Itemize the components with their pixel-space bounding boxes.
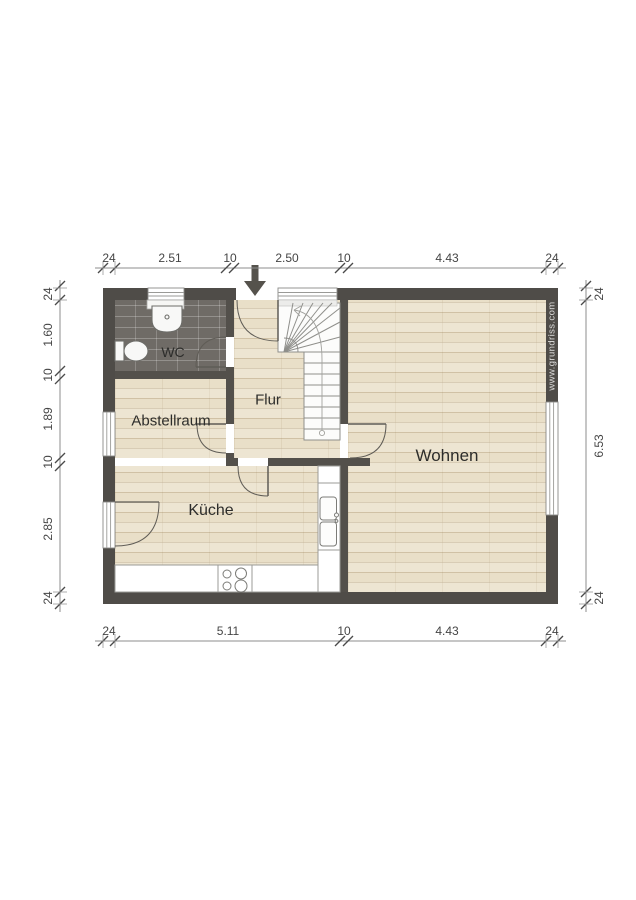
dim-right-2: 24 [592,591,606,604]
kueche-door [238,466,268,496]
dim-bottom-0: 24 [102,624,115,638]
dim-top-1: 2.51 [158,251,181,265]
dim-left-1: 1.60 [41,323,55,346]
window-wohnen-right [546,402,558,515]
dim-top-5: 4.43 [435,251,458,265]
stairs-window-sill [278,300,337,306]
window-wc-top [148,288,184,300]
window-kueche-left [103,502,115,548]
dim-top-6: 24 [545,251,558,265]
dim-right-0: 24 [592,287,606,300]
window-abstellraum-left [103,412,115,456]
room-label-flur: Flur [255,392,281,409]
dim-top-4: 10 [337,251,350,265]
room-label-wc: WC [161,344,184,360]
entrance-arrow-icon [244,265,266,296]
wc-door [196,337,226,367]
dim-left-4: 10 [41,455,55,468]
wohnen-door [348,424,386,458]
dim-bottom-4: 24 [545,624,558,638]
staircase [278,300,340,440]
dim-left-6: 24 [41,591,55,604]
window-stairs-top [278,288,337,300]
room-label-wohnen: Wohnen [415,446,478,466]
dim-top-2: 10 [223,251,236,265]
dim-bottom-2: 10 [337,624,350,638]
dim-top-3: 2.50 [275,251,298,265]
watermark-text: www.grundriss.com [547,301,558,390]
entrance-door [237,300,278,341]
toilet-icon [115,341,148,361]
dim-left-0: 24 [41,287,55,300]
dim-bottom-3: 4.43 [435,624,458,638]
kueche-terrace-door [115,502,159,546]
dim-left-3: 1.89 [41,407,55,430]
floorplan-canvas: WC Flur Abstellraum Küche Wohnen 24 2.51… [0,0,636,900]
dim-top-0: 24 [102,251,115,265]
dim-left-2: 10 [41,368,55,381]
dim-right-1: 6.53 [592,434,606,457]
plan-linework [0,0,636,900]
dim-bottom-1: 5.11 [217,624,239,638]
room-label-abstellraum: Abstellraum [131,413,210,430]
washbasin-icon [152,306,182,332]
dim-left-5: 2.85 [41,517,55,540]
room-label-kueche: Küche [188,502,233,520]
